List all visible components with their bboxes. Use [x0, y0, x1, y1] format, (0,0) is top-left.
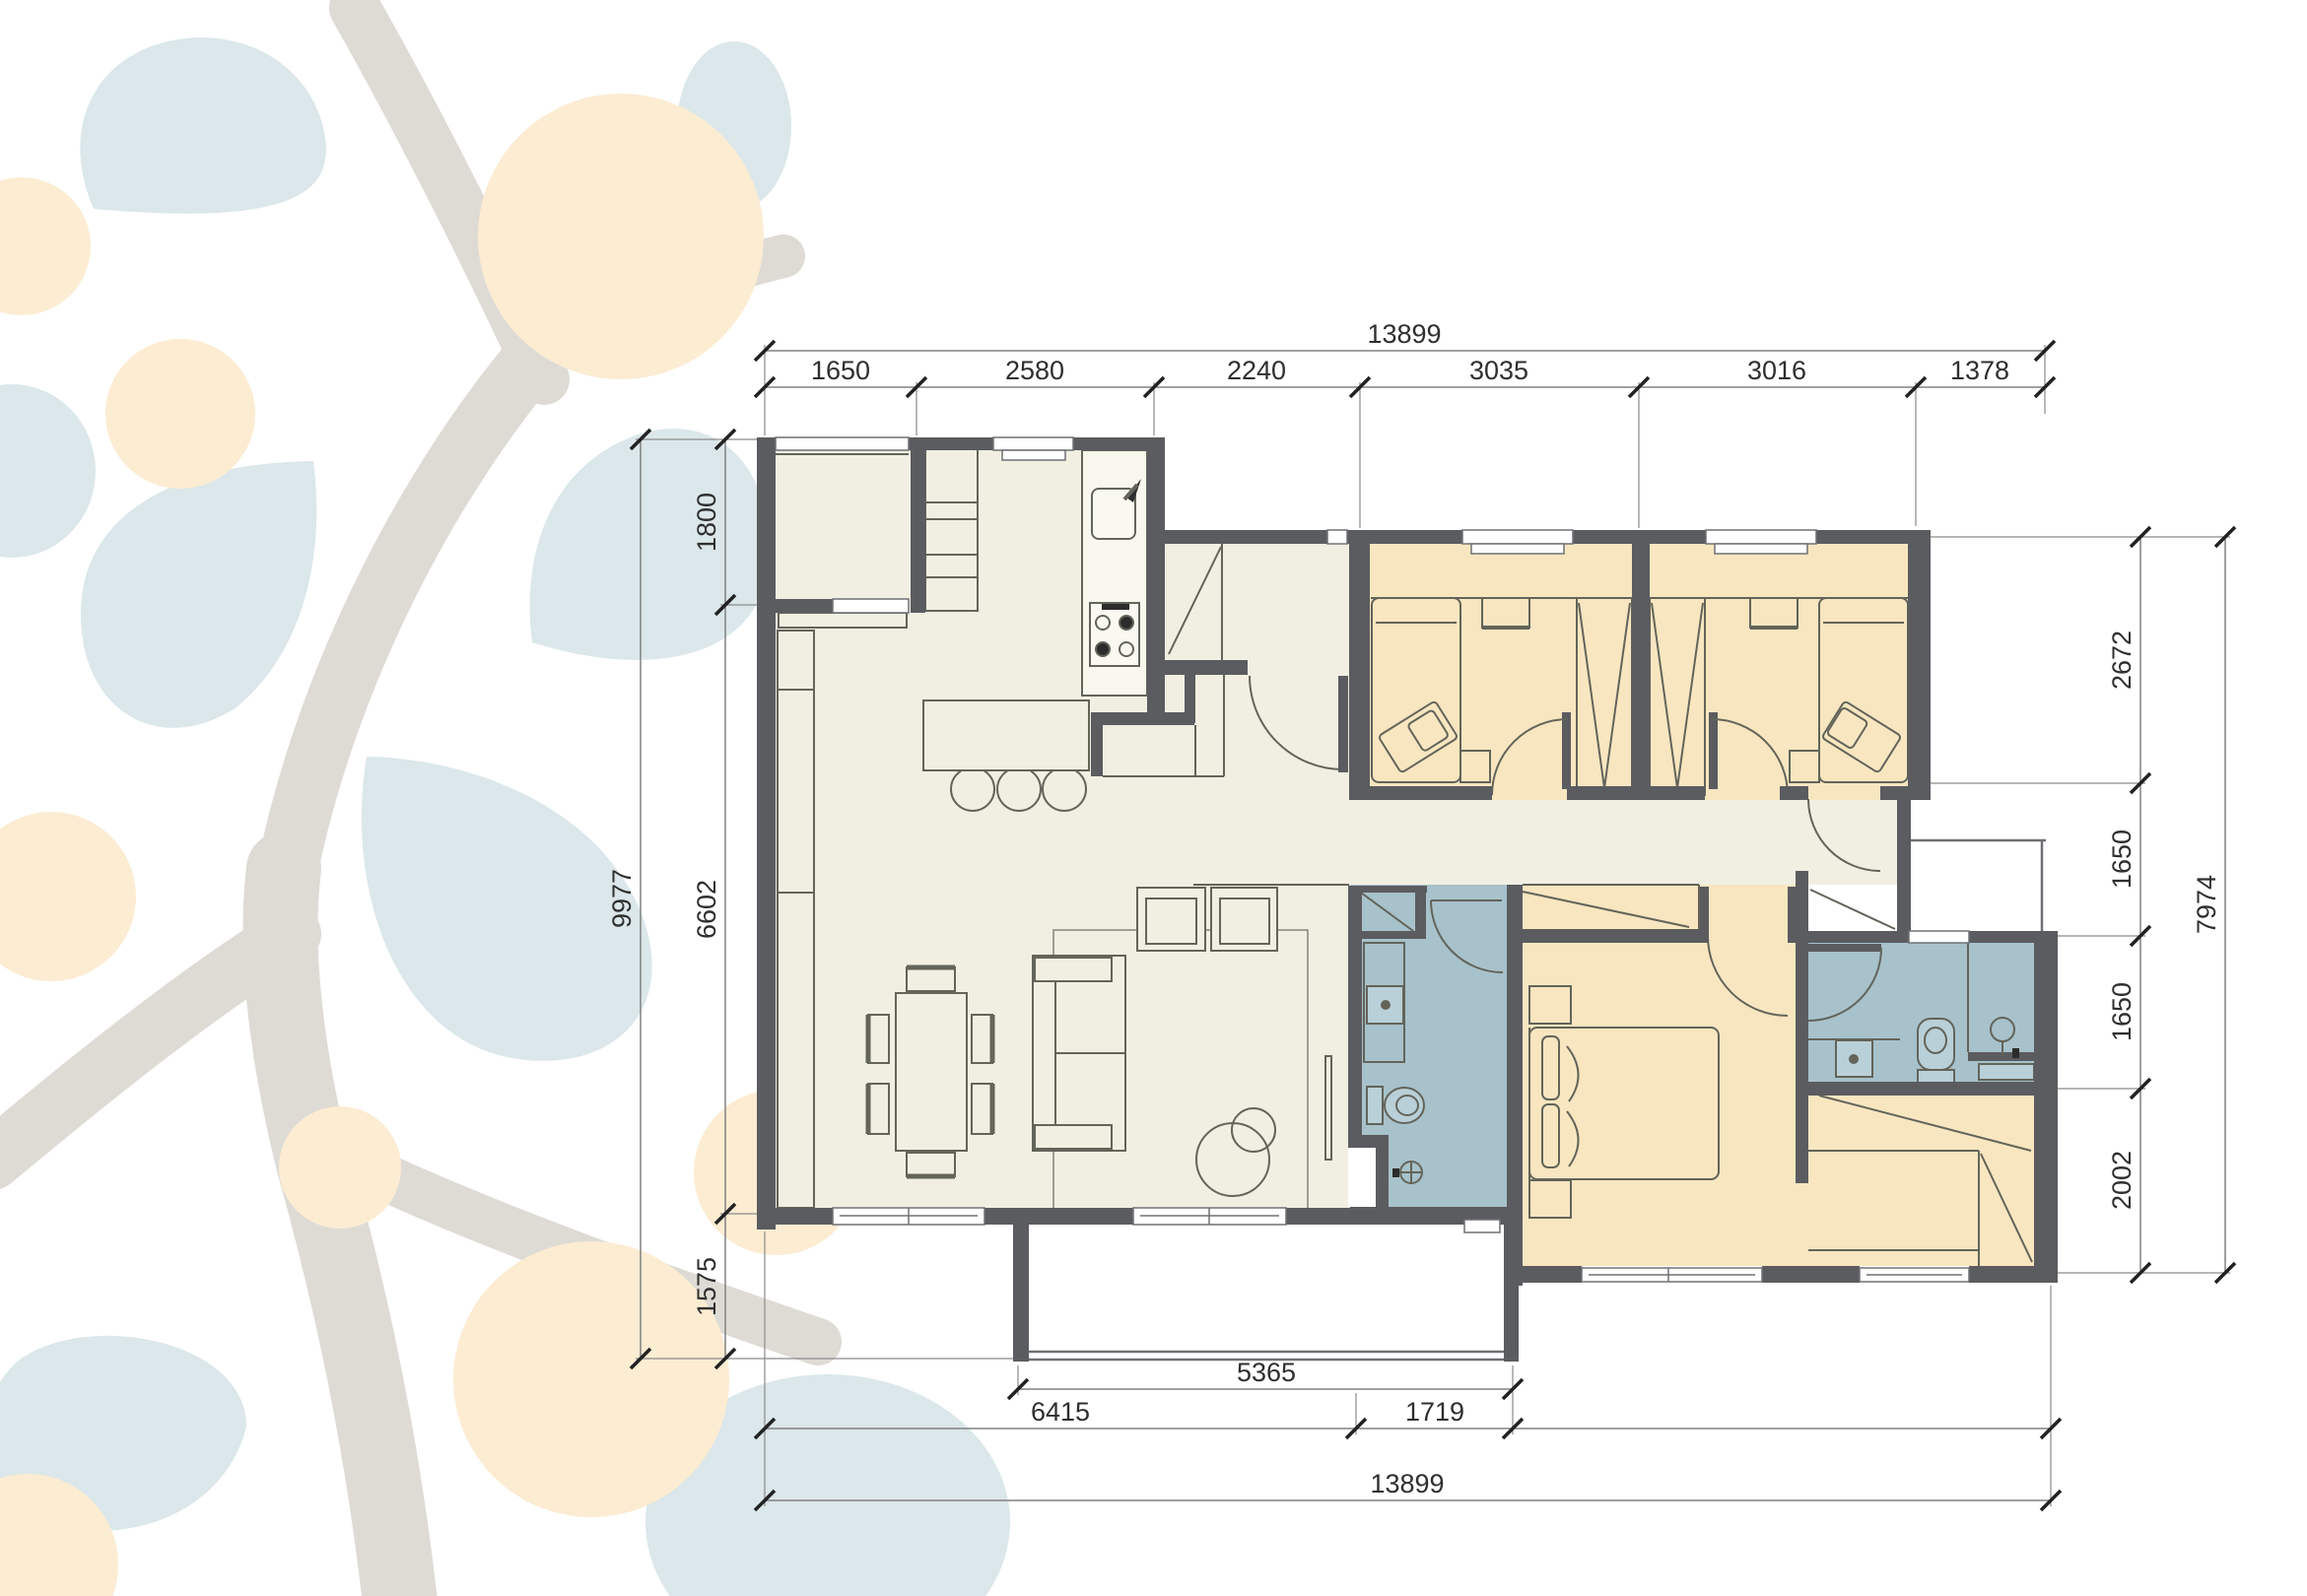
svg-text:1650: 1650 — [2107, 982, 2137, 1041]
svg-text:13899: 13899 — [1370, 1469, 1444, 1498]
svg-text:1650: 1650 — [2107, 830, 2137, 889]
svg-text:1575: 1575 — [692, 1257, 721, 1316]
svg-text:2580: 2580 — [1005, 356, 1064, 385]
svg-text:1378: 1378 — [1950, 356, 2009, 385]
svg-text:2002: 2002 — [2107, 1151, 2137, 1210]
svg-text:6415: 6415 — [1031, 1397, 1090, 1427]
svg-text:2672: 2672 — [2107, 631, 2137, 690]
svg-text:1719: 1719 — [1405, 1397, 1464, 1427]
svg-text:5365: 5365 — [1237, 1358, 1296, 1387]
svg-text:6602: 6602 — [692, 880, 721, 939]
svg-text:1650: 1650 — [811, 356, 870, 385]
svg-text:13899: 13899 — [1367, 319, 1441, 349]
svg-text:1800: 1800 — [692, 493, 721, 552]
svg-text:7974: 7974 — [2192, 875, 2221, 934]
svg-text:3016: 3016 — [1747, 356, 1806, 385]
svg-text:2240: 2240 — [1227, 356, 1286, 385]
svg-text:9977: 9977 — [607, 869, 637, 928]
svg-text:3035: 3035 — [1469, 356, 1528, 385]
